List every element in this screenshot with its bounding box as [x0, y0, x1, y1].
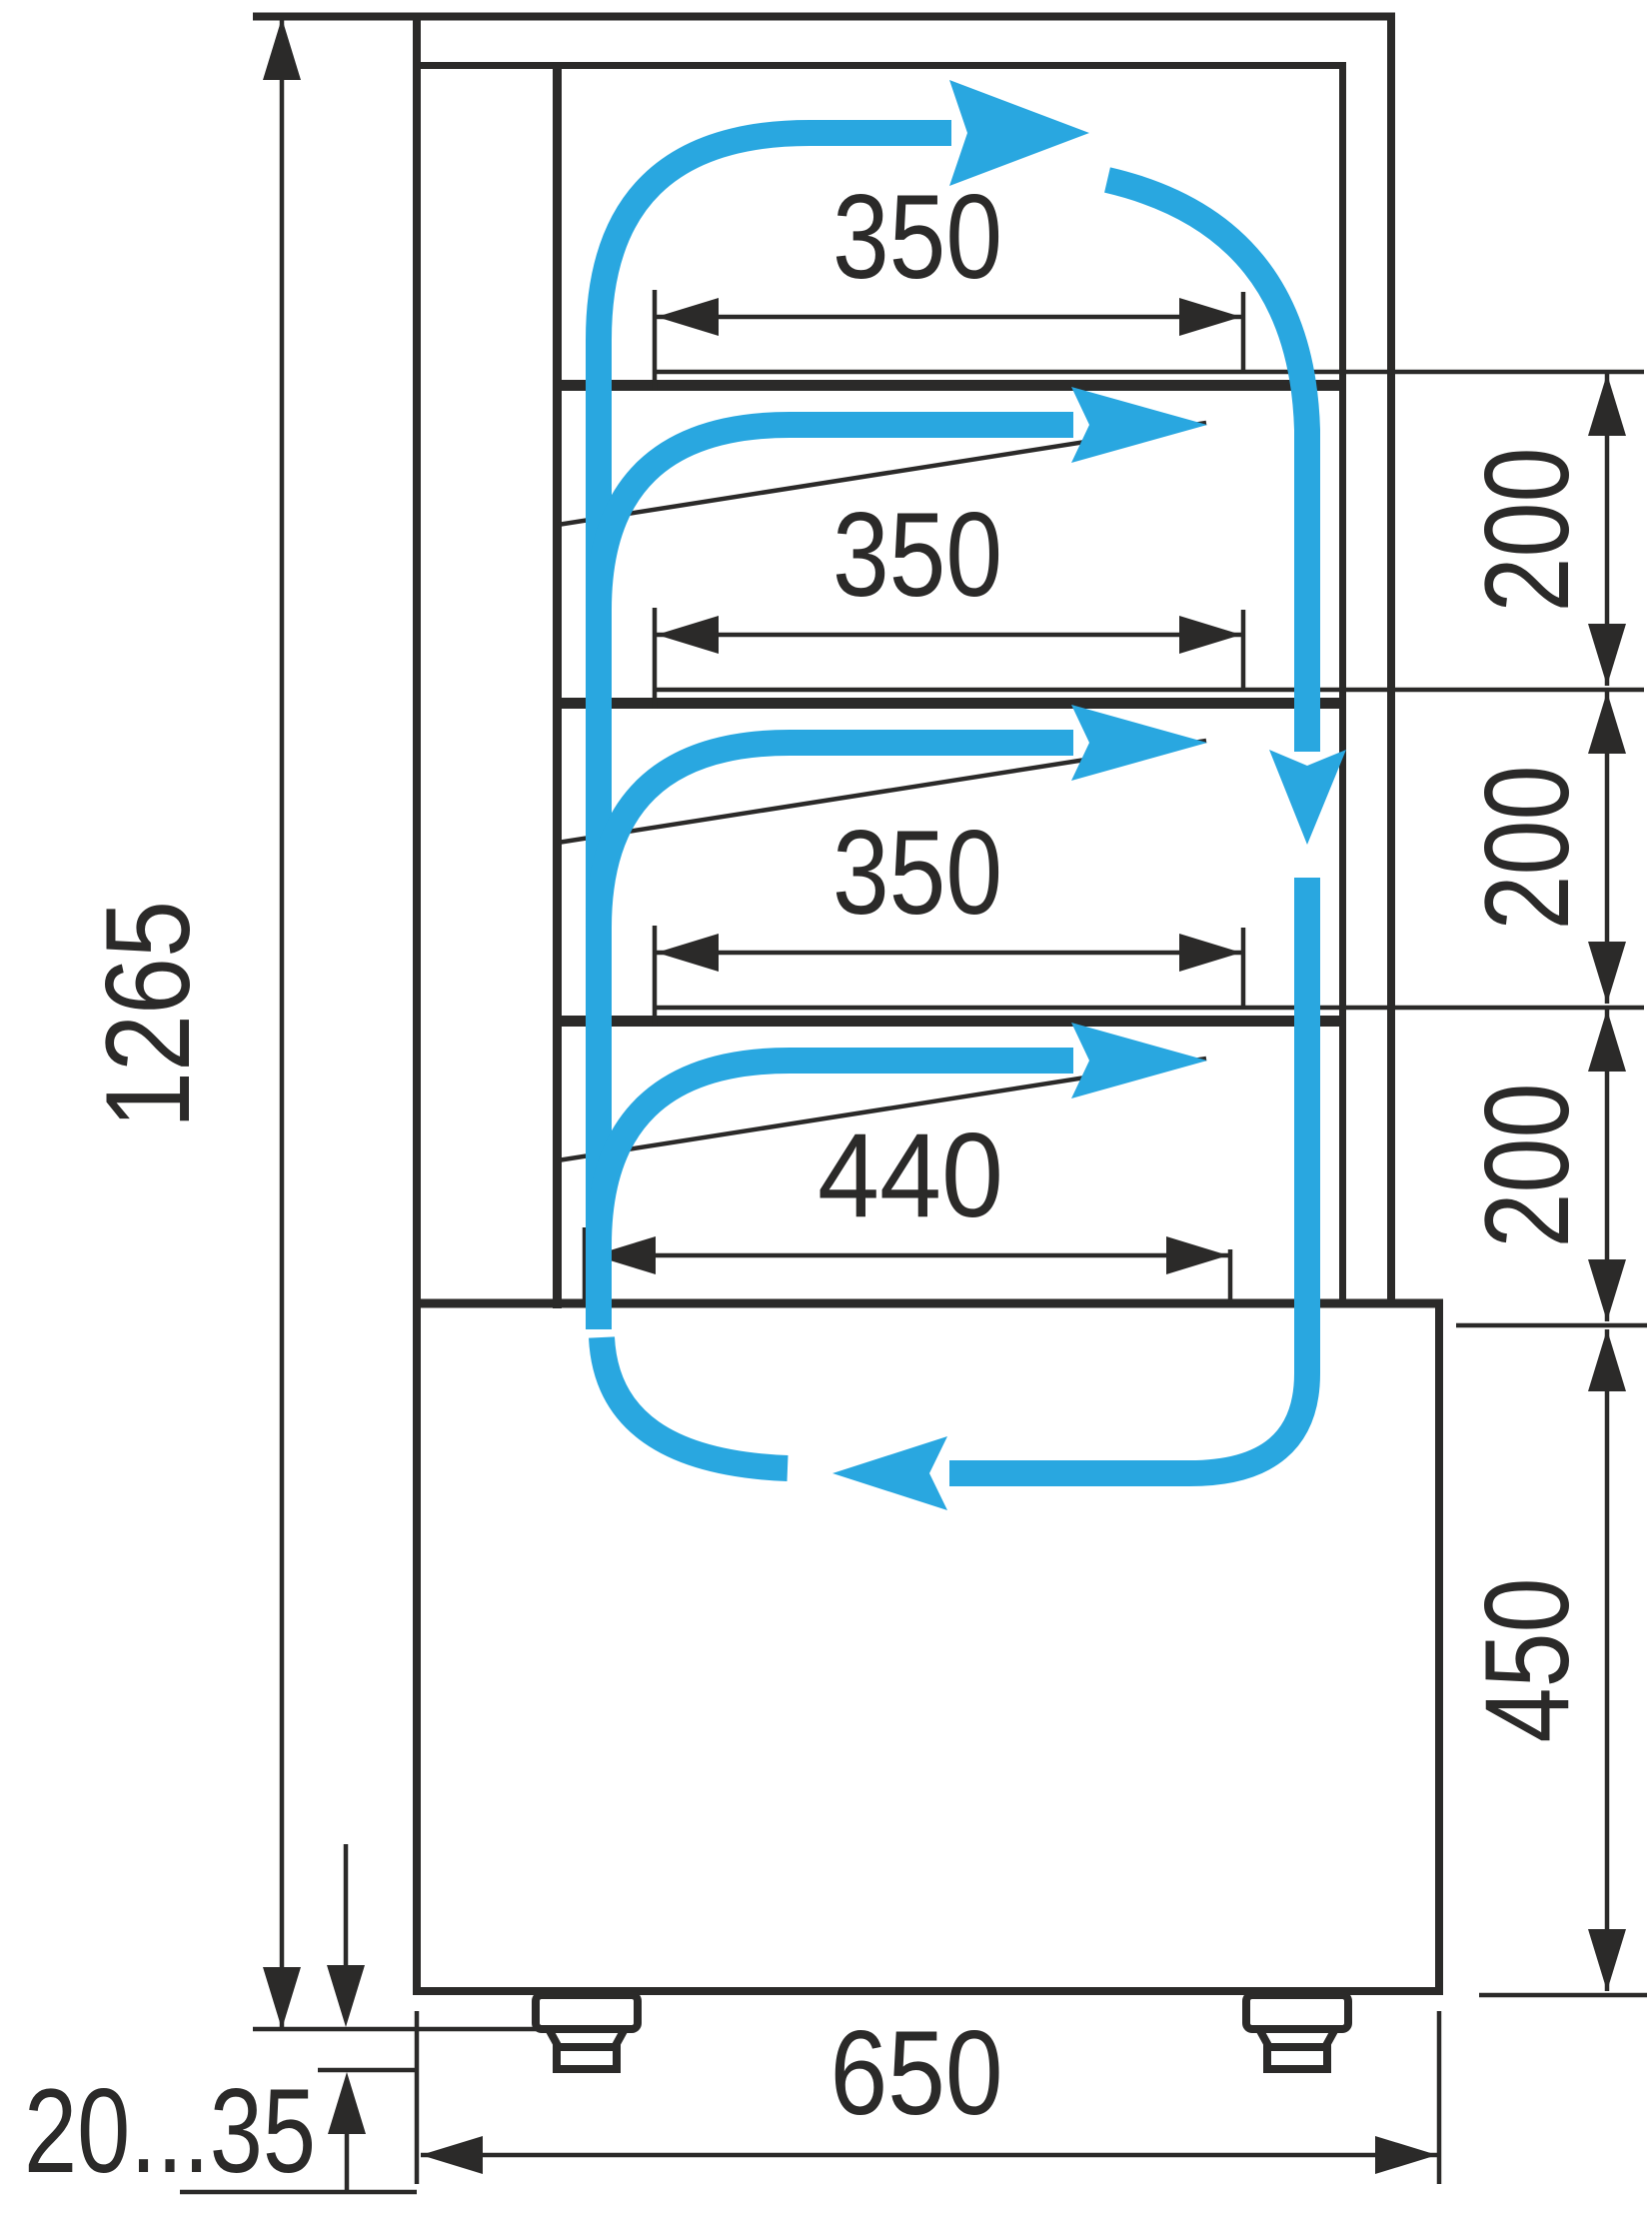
dimension-line-strokes: [282, 20, 1607, 2192]
arrow-650-right-icon: [1375, 2136, 1437, 2174]
arrow-1265-bottom-icon: [263, 1967, 301, 2029]
label-overall-height: 1265: [81, 901, 215, 1128]
airflow-streams: [599, 133, 1307, 1473]
arrow-200-3-top-icon: [1588, 1010, 1626, 1072]
arrow-450-top-icon: [1588, 1329, 1626, 1391]
dimension-arrowheads: [263, 18, 1626, 2174]
drawing-canvas: 350 350 350 440 650 200 200 200 450 1265…: [0, 0, 1652, 2213]
arrow-440-right-icon: [1166, 1236, 1228, 1274]
airflow-arrow-shelf-1-icon: [1071, 387, 1207, 463]
foot-right-stem: [1246, 1995, 1348, 2029]
arrow-foot-up-icon: [328, 2072, 366, 2134]
label-level-height-3: 200: [1460, 1084, 1594, 1248]
arrow-200-1-top-icon: [1588, 374, 1626, 436]
label-bottom-shelf-width: 440: [818, 1108, 1003, 1242]
label-level-height-2: 200: [1460, 766, 1594, 931]
arrow-350-2-left-icon: [657, 616, 719, 654]
airflow-arrow-shelf-2-icon: [1071, 705, 1207, 781]
label-shelf-2-width: 350: [832, 488, 1002, 622]
foot-left-plate: [557, 2047, 617, 2069]
foot-left-stem: [536, 1995, 638, 2029]
arrow-200-2-bottom-icon: [1588, 942, 1626, 1004]
foot-right: [1246, 1995, 1348, 2069]
label-shelf-1-width: 350: [832, 170, 1002, 304]
arrow-foot-down-icon: [327, 1965, 365, 2027]
arrow-450-bottom-icon: [1588, 1929, 1626, 1991]
arrow-200-2-top-icon: [1588, 692, 1626, 754]
arrow-350-1-right-icon: [1179, 298, 1241, 336]
arrow-200-3-bottom-icon: [1588, 1259, 1626, 1321]
foot-right-plate: [1267, 2047, 1327, 2069]
label-shelf-3-width: 350: [832, 806, 1002, 940]
airflow-arrow-return-icon: [832, 1436, 947, 1510]
label-base-height: 450: [1460, 1578, 1594, 1743]
arrow-350-2-right-icon: [1179, 616, 1241, 654]
arrow-350-1-left-icon: [657, 298, 719, 336]
display-case-diagram: 350 350 350 440 650 200 200 200 450 1265…: [0, 0, 1652, 2213]
arrow-350-3-right-icon: [1179, 934, 1241, 972]
airflow-glass-down-1: [1107, 180, 1307, 752]
label-foot-height-range: 20...35: [24, 2064, 316, 2198]
dimension-lines: [263, 18, 1626, 2192]
foot-left: [536, 1995, 638, 2069]
arrow-650-left-icon: [421, 2136, 483, 2174]
label-overall-depth: 650: [830, 2006, 1003, 2140]
arrow-350-3-left-icon: [657, 934, 719, 972]
cabinet-outline: [253, 13, 1443, 1995]
airflow-arrow-shelf-3-icon: [1071, 1023, 1207, 1099]
airflow-arrow-down-glass-icon: [1269, 750, 1346, 845]
arrow-1265-top-icon: [263, 18, 301, 80]
dimension-labels: 350 350 350 440 650 200 200 200 450 1265…: [24, 170, 1594, 2198]
label-level-height-1: 200: [1460, 448, 1594, 613]
airflow-return-arc: [602, 1337, 788, 1468]
arrow-200-1-bottom-icon: [1588, 624, 1626, 686]
